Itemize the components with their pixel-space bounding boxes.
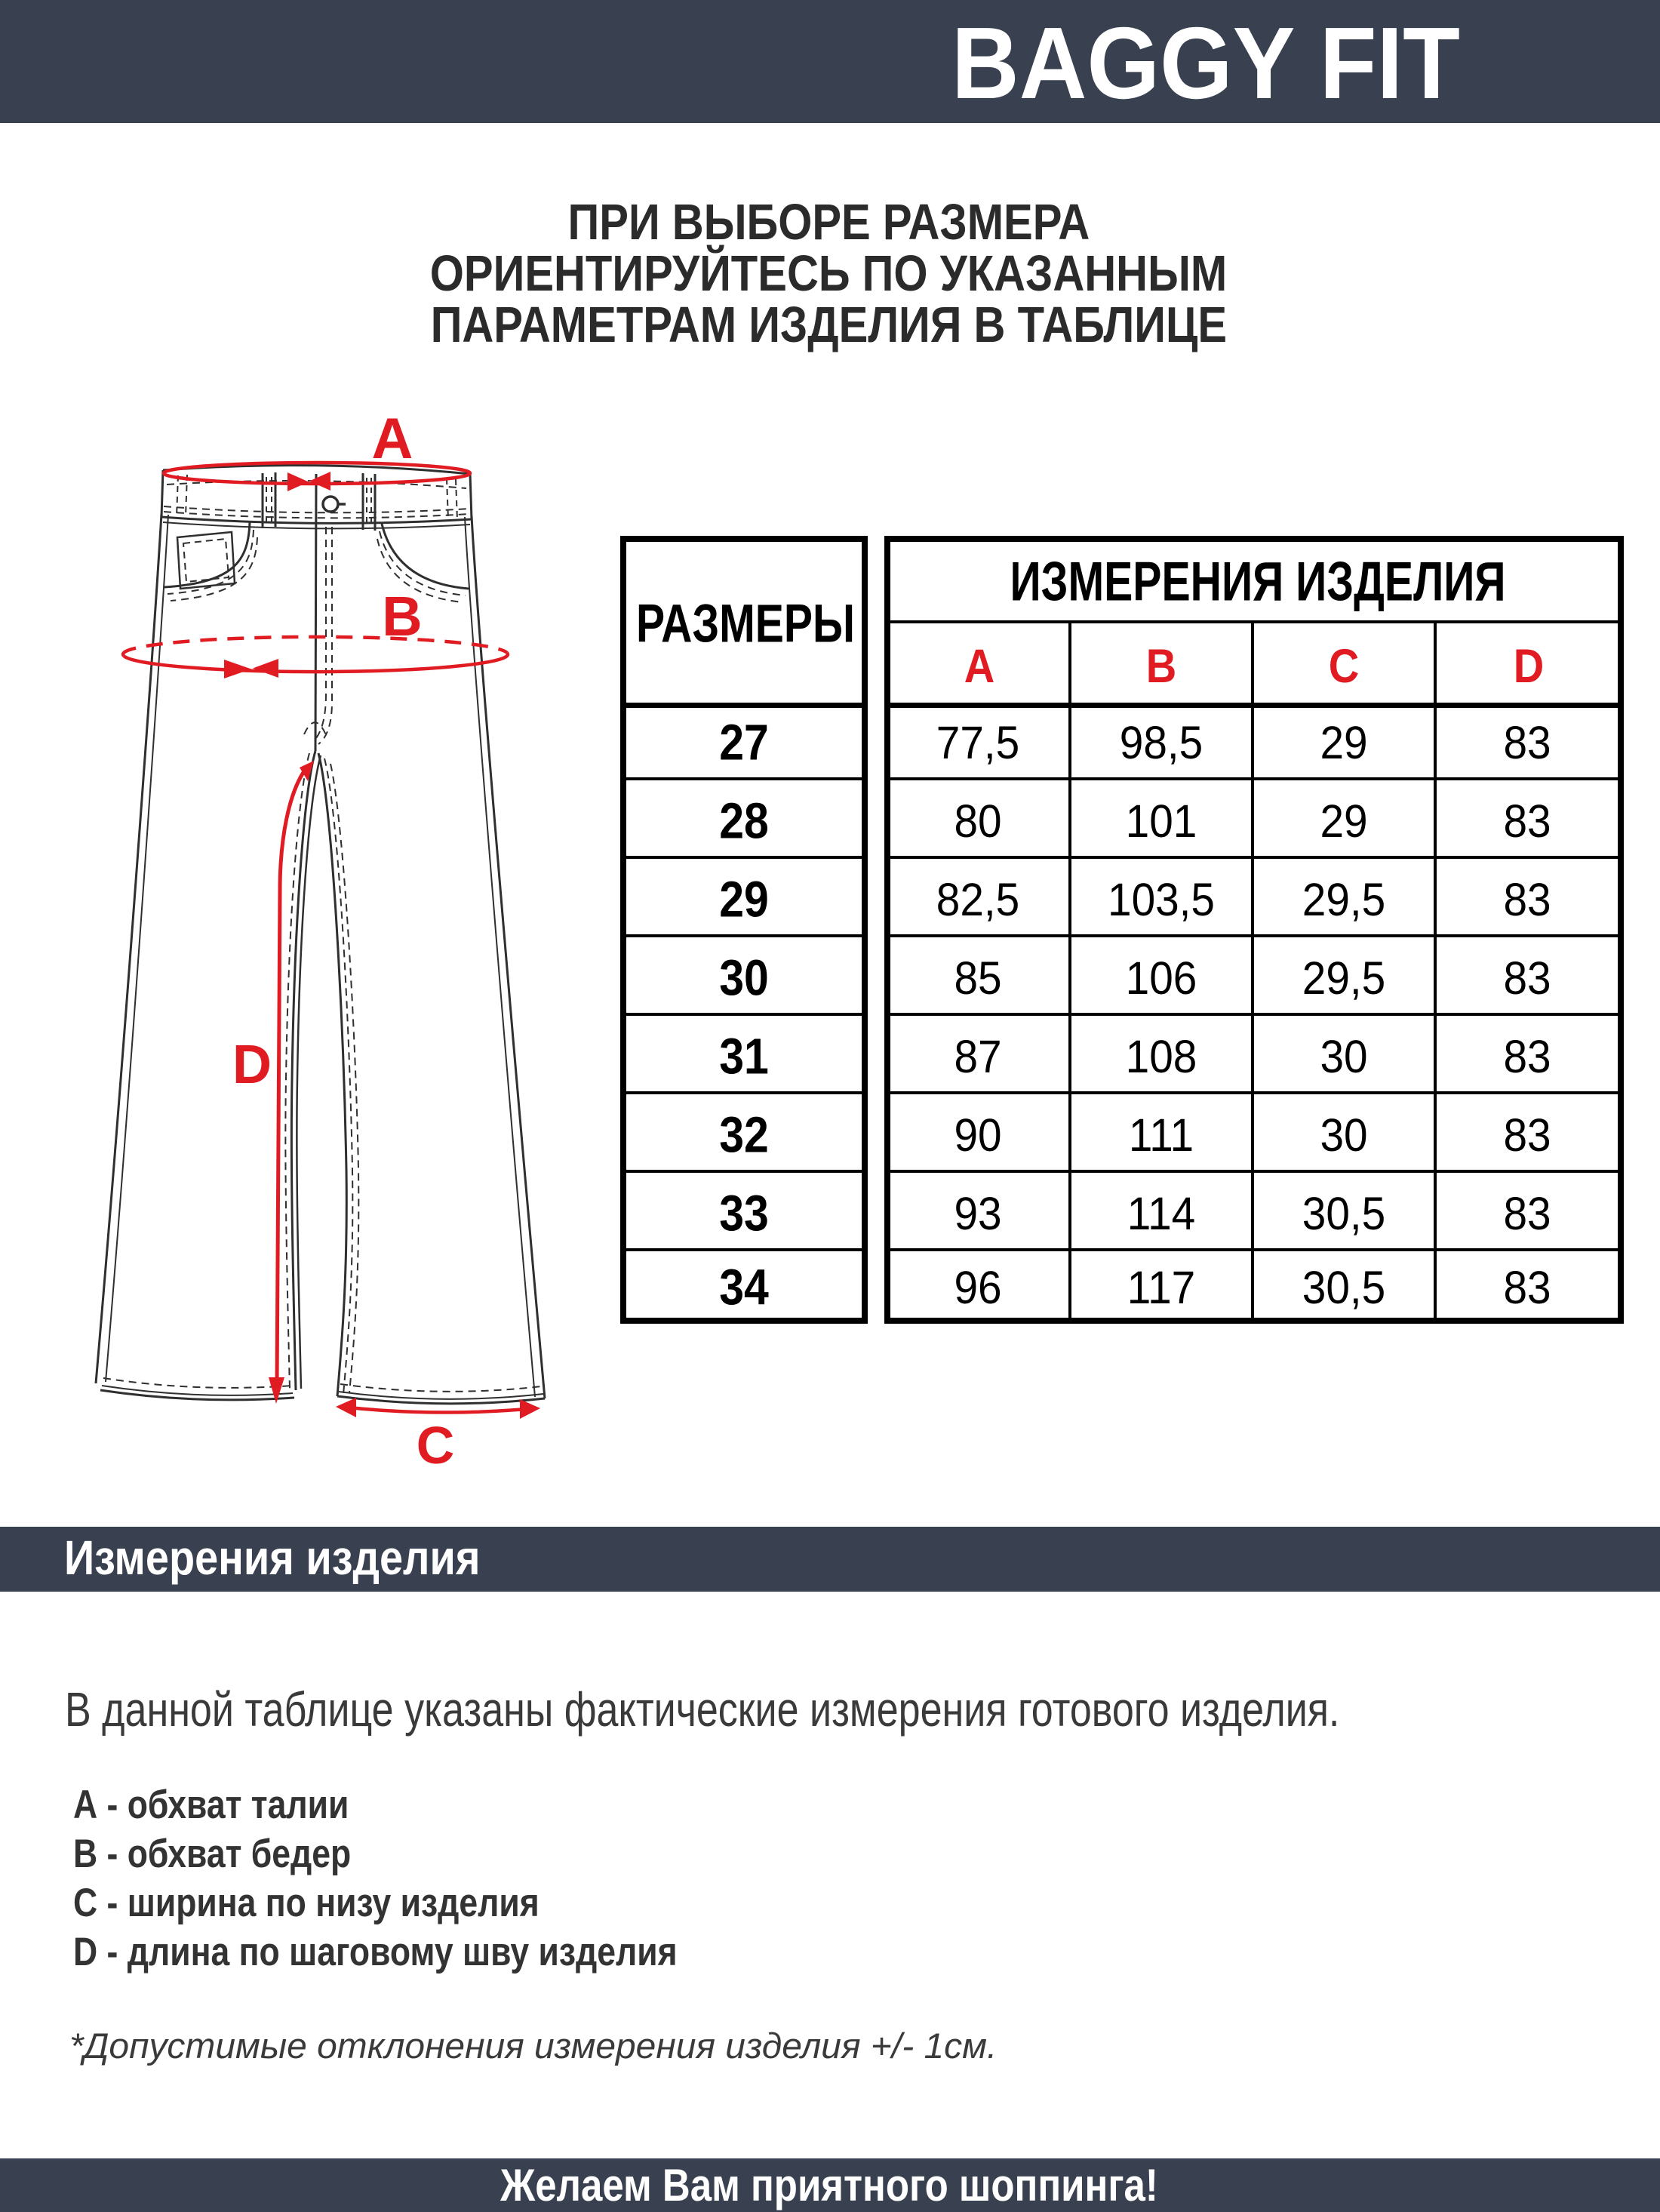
svg-text:D: D <box>232 1035 272 1095</box>
svg-text:A: A <box>372 407 413 471</box>
svg-text:B: B <box>382 585 422 648</box>
svg-text:C: C <box>417 1416 455 1475</box>
